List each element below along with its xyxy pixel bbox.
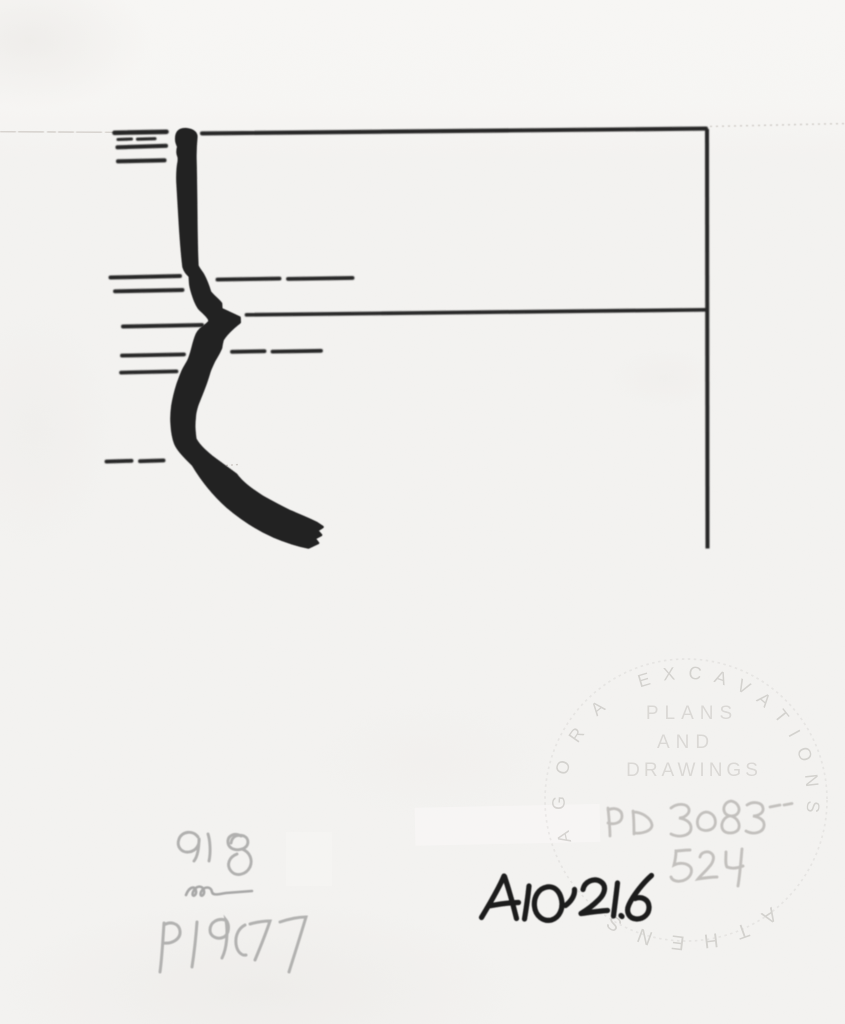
svg-text:PLANS: PLANS [646, 703, 738, 724]
svg-text:DRAWINGS: DRAWINGS [626, 760, 762, 781]
svg-text:AND: AND [657, 732, 715, 753]
